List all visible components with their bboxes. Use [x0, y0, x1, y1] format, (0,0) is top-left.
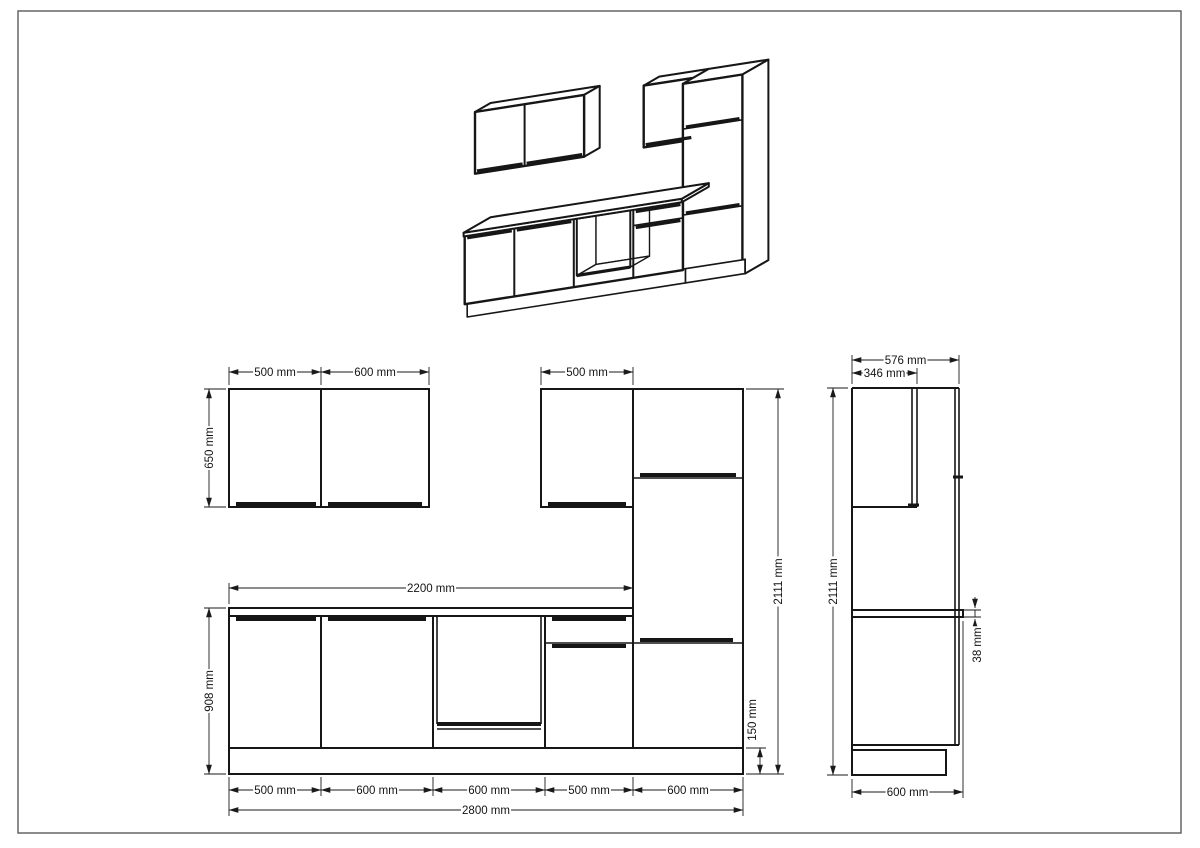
dimension-label: 600 mm — [356, 785, 398, 797]
oblique-3d-view — [464, 60, 769, 317]
dimension-label-group: 38 mm — [970, 626, 984, 664]
front-outline — [229, 389, 321, 507]
dimension-label: 2200 mm — [407, 583, 455, 595]
dimension-label: 600 mm — [354, 367, 396, 379]
front-outline — [229, 608, 633, 616]
front-elevation-view — [229, 389, 743, 774]
dimension-label-group: 500 mm — [253, 365, 297, 379]
front-outline — [229, 748, 743, 774]
cabinet-face-3d — [683, 75, 743, 271]
drawing-page: 500 mm600 mm500 mm2200 mm500 mm600 mm600… — [0, 0, 1200, 848]
dimension-label-group: 600 mm — [355, 783, 399, 797]
dimension-label: 38 mm — [972, 627, 984, 662]
dimension-label: 600 mm — [887, 787, 929, 799]
dimension-label: 500 mm — [254, 367, 296, 379]
front-outline — [229, 616, 321, 748]
dimension-label: 500 mm — [568, 785, 610, 797]
dimension-label-group: 600 mm — [886, 785, 930, 799]
front-outline — [545, 616, 633, 748]
cabinet-face-3d — [584, 86, 600, 157]
side-outline — [852, 750, 946, 775]
dimension-label-group: 600 mm — [467, 783, 511, 797]
dimension-label-group: 600 mm — [666, 783, 710, 797]
dimension-label: 2111 mm — [773, 558, 785, 604]
dimension-label-group: 2111 mm — [826, 556, 840, 606]
front-outline — [541, 389, 633, 507]
dimension-label: 150 mm — [747, 699, 759, 741]
dimension-label: 2111 mm — [828, 558, 840, 604]
front-outline — [633, 389, 743, 748]
dimension-label-group: 346 mm — [863, 366, 907, 380]
front-outline — [321, 389, 429, 507]
dimension-label: 600 mm — [468, 785, 510, 797]
dimension-label: 500 mm — [254, 785, 296, 797]
dimension-label-group: 2200 mm — [406, 581, 456, 595]
dimension-label: 576 mm — [885, 355, 927, 367]
dimension-label-group: 2111 mm — [771, 556, 785, 606]
dimension-label-group: 600 mm — [353, 365, 397, 379]
dimension-label-group: 500 mm — [253, 783, 297, 797]
dimension-label-group: 500 mm — [567, 783, 611, 797]
dimension-label: 500 mm — [566, 367, 608, 379]
side-outline — [852, 610, 963, 617]
dimension-label-group: 150 mm — [745, 698, 759, 742]
cabinet-face-3d — [742, 60, 768, 274]
dimension-label: 2800 mm — [462, 805, 510, 817]
front-outline — [321, 616, 433, 748]
dimension-label-group: 500 mm — [565, 365, 609, 379]
dimension-label-group: 908 mm — [202, 669, 216, 713]
dimension-label-group: 650 mm — [202, 426, 216, 470]
dimension-label-group: 2800 mm — [461, 803, 511, 817]
technical-drawing: 500 mm600 mm500 mm2200 mm500 mm600 mm600… — [0, 0, 1200, 848]
dimension-label: 346 mm — [864, 368, 906, 380]
dimension-label-group: 576 mm — [884, 353, 928, 367]
dimension-label: 908 mm — [204, 670, 216, 712]
dimension-label: 650 mm — [204, 427, 216, 469]
side-elevation-view — [852, 388, 963, 775]
dimension-label: 600 mm — [667, 785, 709, 797]
